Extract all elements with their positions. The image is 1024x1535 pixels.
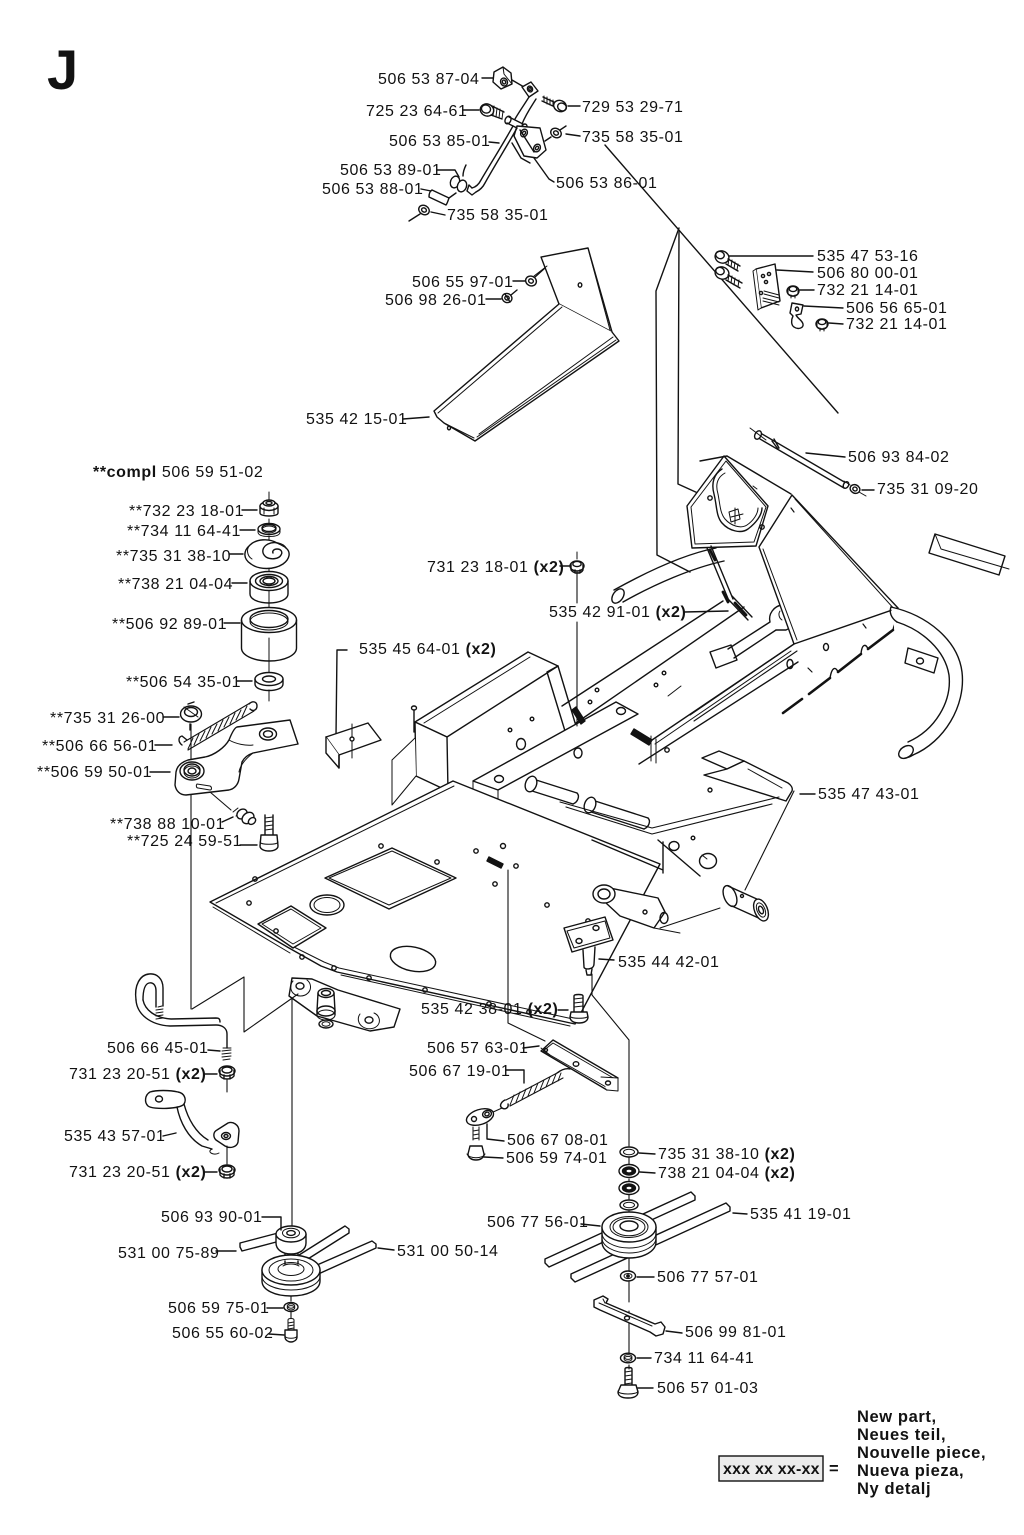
svg-text:Nouvelle piece,: Nouvelle piece, bbox=[857, 1444, 986, 1462]
svg-text:535 43 57-01: 535 43 57-01 bbox=[64, 1128, 166, 1145]
svg-text:=: = bbox=[829, 1460, 839, 1478]
svg-text:506 53 86-01: 506 53 86-01 bbox=[556, 175, 658, 192]
svg-text:**735 31 26-00: **735 31 26-00 bbox=[50, 710, 165, 727]
svg-text:506 53 85-01: 506 53 85-01 bbox=[389, 133, 491, 150]
svg-text:506 53 88-01: 506 53 88-01 bbox=[322, 181, 424, 198]
svg-text:J: J bbox=[47, 38, 79, 101]
svg-text:**735 31 38-10: **735 31 38-10 bbox=[116, 548, 231, 565]
svg-text:**506 59 50-01: **506 59 50-01 bbox=[37, 764, 152, 781]
svg-text:**compl 506 59 51-02: **compl 506 59 51-02 bbox=[93, 464, 263, 481]
svg-text:735 31 09-20: 735 31 09-20 bbox=[877, 481, 979, 498]
svg-text:506 93 90-01: 506 93 90-01 bbox=[161, 1209, 263, 1226]
svg-text:New part,: New part, bbox=[857, 1408, 937, 1426]
svg-text:Nueva pieza,: Nueva pieza, bbox=[857, 1462, 964, 1480]
svg-text:535 42 91-01 (x2): 535 42 91-01 (x2) bbox=[549, 604, 686, 621]
svg-text:535 41 19-01: 535 41 19-01 bbox=[750, 1206, 852, 1223]
svg-text:506 56 65-01: 506 56 65-01 bbox=[846, 300, 948, 317]
svg-text:xxx xx xx-xx: xxx xx xx-xx bbox=[723, 1461, 820, 1478]
svg-text:506 55 60-02: 506 55 60-02 bbox=[172, 1325, 274, 1342]
svg-text:**732 23 18-01: **732 23 18-01 bbox=[129, 503, 244, 520]
svg-text:735 31 38-10 (x2): 735 31 38-10 (x2) bbox=[658, 1146, 795, 1163]
svg-text:**506 66 56-01: **506 66 56-01 bbox=[42, 738, 157, 755]
svg-text:725 23 64-61: 725 23 64-61 bbox=[366, 103, 468, 120]
svg-text:**725 24 59-51: **725 24 59-51 bbox=[127, 833, 242, 850]
svg-text:506 98 26-01: 506 98 26-01 bbox=[385, 292, 487, 309]
svg-text:506 59 74-01: 506 59 74-01 bbox=[506, 1150, 608, 1167]
svg-text:506 77 57-01: 506 77 57-01 bbox=[657, 1269, 759, 1286]
svg-text:506 55 97-01: 506 55 97-01 bbox=[412, 274, 514, 291]
svg-text:506 57 63-01: 506 57 63-01 bbox=[427, 1040, 529, 1057]
svg-text:535 47 43-01: 535 47 43-01 bbox=[818, 786, 920, 803]
svg-text:506 53 89-01: 506 53 89-01 bbox=[340, 162, 442, 179]
svg-text:**738 88 10-01: **738 88 10-01 bbox=[110, 816, 225, 833]
svg-text:**506 54 35-01: **506 54 35-01 bbox=[126, 674, 241, 691]
svg-text:731 23 18-01 (x2): 731 23 18-01 (x2) bbox=[427, 559, 564, 576]
svg-text:506 57 01-03: 506 57 01-03 bbox=[657, 1380, 759, 1397]
svg-text:535 44 42-01: 535 44 42-01 bbox=[618, 954, 720, 971]
svg-text:506 53 87-04: 506 53 87-04 bbox=[378, 71, 480, 88]
svg-text:535 42 38-01 (x2): 535 42 38-01 (x2) bbox=[421, 1001, 558, 1018]
svg-text:735 58 35-01: 735 58 35-01 bbox=[582, 129, 684, 146]
svg-text:729 53 29-71: 729 53 29-71 bbox=[582, 99, 684, 116]
svg-text:734 11 64-41: 734 11 64-41 bbox=[654, 1350, 754, 1367]
svg-text:506 66 45-01: 506 66 45-01 bbox=[107, 1040, 209, 1057]
svg-text:731 23 20-51 (x2): 731 23 20-51 (x2) bbox=[69, 1164, 206, 1181]
svg-text:535 42 15-01: 535 42 15-01 bbox=[306, 411, 408, 428]
svg-text:731 23 20-51 (x2): 731 23 20-51 (x2) bbox=[69, 1066, 206, 1083]
svg-text:506 67 08-01: 506 67 08-01 bbox=[507, 1132, 609, 1149]
svg-text:Ny detalj: Ny detalj bbox=[857, 1480, 931, 1498]
svg-text:732 21 14-01: 732 21 14-01 bbox=[846, 316, 948, 333]
svg-text:531 00 75-89: 531 00 75-89 bbox=[118, 1245, 220, 1262]
svg-text:506 59 75-01: 506 59 75-01 bbox=[168, 1300, 270, 1317]
svg-text:738 21 04-04 (x2): 738 21 04-04 (x2) bbox=[658, 1165, 795, 1182]
svg-text:**738 21 04-04: **738 21 04-04 bbox=[118, 576, 233, 593]
svg-text:732 21 14-01: 732 21 14-01 bbox=[817, 282, 919, 299]
svg-text:506 80 00-01: 506 80 00-01 bbox=[817, 265, 919, 282]
svg-text:531 00 50-14: 531 00 50-14 bbox=[397, 1243, 499, 1260]
svg-text:506 67 19-01: 506 67 19-01 bbox=[409, 1063, 511, 1080]
svg-text:506 93 84-02: 506 93 84-02 bbox=[848, 449, 950, 466]
svg-text:506 99 81-01: 506 99 81-01 bbox=[685, 1324, 787, 1341]
svg-text:**734 11 64-41: **734 11 64-41 bbox=[127, 523, 241, 540]
svg-text:535 47 53-16: 535 47 53-16 bbox=[817, 248, 919, 265]
svg-text:Neues teil,: Neues teil, bbox=[857, 1426, 946, 1444]
svg-text:535 45 64-01 (x2): 535 45 64-01 (x2) bbox=[359, 641, 496, 658]
svg-text:735 58 35-01: 735 58 35-01 bbox=[447, 207, 549, 224]
svg-text:**506 92 89-01: **506 92 89-01 bbox=[112, 616, 227, 633]
svg-text:506 77 56-01: 506 77 56-01 bbox=[487, 1214, 589, 1231]
